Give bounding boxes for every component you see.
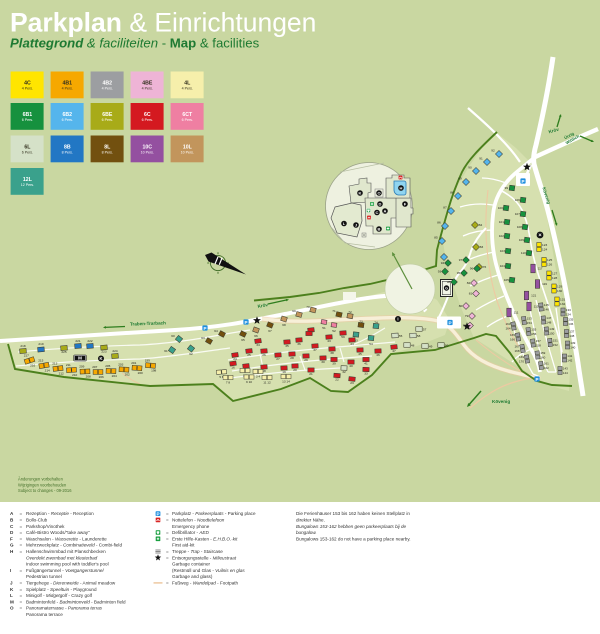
svg-text:Mehrzweckplatz - Combinatievel: Mehrzweckplatz - Combinatieveld - Combi-… — [26, 543, 122, 548]
svg-text:69: 69 — [292, 309, 296, 313]
svg-text:Waschsalon - Wasserette - Laun: Waschsalon - Wasserette - Launderette — [26, 536, 107, 541]
svg-text:P: P — [448, 320, 451, 325]
svg-text:213: 213 — [52, 362, 57, 366]
svg-text:100: 100 — [498, 206, 503, 210]
svg-text:119: 119 — [542, 282, 547, 286]
svg-text:13 14: 13 14 — [282, 379, 290, 383]
svg-text:4 Pers.: 4 Pers. — [142, 86, 153, 90]
svg-text:=: = — [20, 587, 23, 592]
svg-text:84: 84 — [479, 223, 483, 227]
svg-text:M: M — [10, 599, 14, 604]
svg-text:146: 146 — [544, 307, 549, 311]
svg-text:49: 49 — [429, 344, 433, 348]
svg-text:81: 81 — [469, 292, 473, 296]
svg-text:166: 166 — [510, 337, 515, 341]
svg-text:=: = — [20, 568, 23, 573]
svg-text:35: 35 — [285, 344, 289, 348]
svg-text:=: = — [166, 530, 169, 535]
svg-text:=: = — [20, 593, 23, 598]
svg-text:216: 216 — [30, 364, 35, 368]
svg-text:Emergency phone: Emergency phone — [172, 524, 210, 529]
svg-text:164: 164 — [506, 326, 511, 330]
svg-text:7 8: 7 8 — [226, 380, 231, 384]
svg-text:=: = — [20, 518, 23, 523]
svg-text:3 4: 3 4 — [256, 374, 261, 378]
svg-text:96: 96 — [470, 267, 474, 271]
svg-text:J: J — [355, 222, 357, 227]
svg-text:F: F — [10, 536, 13, 541]
svg-text:=: = — [20, 543, 23, 548]
svg-text:79: 79 — [465, 314, 469, 318]
svg-text:Bungalows 153-162 do not have: Bungalows 153-162 do not have a parking … — [296, 536, 411, 541]
svg-text:92: 92 — [491, 149, 495, 153]
svg-text:67: 67 — [268, 329, 272, 333]
svg-text:152: 152 — [553, 343, 558, 347]
svg-text:Rezeption - Receptie - Recepti: Rezeption - Receptie - Reception — [26, 511, 94, 516]
svg-text:I: I — [397, 317, 398, 322]
svg-text:217: 217 — [24, 354, 29, 358]
svg-text:154: 154 — [527, 321, 532, 325]
svg-text:=: = — [20, 606, 23, 611]
svg-text:106: 106 — [515, 198, 520, 202]
svg-text:25: 25 — [247, 353, 251, 357]
svg-text:6 Pers.: 6 Pers. — [22, 118, 33, 122]
svg-text:95: 95 — [457, 271, 461, 275]
svg-text:103: 103 — [500, 249, 505, 253]
svg-text:128: 128 — [552, 276, 557, 280]
svg-text:200: 200 — [138, 371, 143, 375]
svg-text:86: 86 — [437, 221, 441, 225]
svg-text:P: P — [156, 511, 159, 516]
svg-text:Subject to changes - 09-2016: Subject to changes - 09-2016 — [18, 488, 72, 493]
svg-text:65: 65 — [241, 338, 245, 342]
svg-text:4 Pers.: 4 Pers. — [62, 86, 73, 90]
svg-text:=: = — [20, 524, 23, 529]
svg-text:10 Pers.: 10 Pers. — [181, 150, 194, 154]
svg-text:134: 134 — [566, 312, 571, 316]
svg-text:123: 123 — [542, 243, 547, 247]
svg-text:105: 105 — [504, 278, 509, 282]
svg-text:71: 71 — [332, 309, 336, 313]
svg-text:4 Pers.: 4 Pers. — [182, 86, 193, 90]
svg-text:Badmintonfeld - Badmintonveld: Badmintonfeld - Badmintonveld - Badminto… — [26, 599, 126, 604]
svg-text:Garbage container: Garbage container — [172, 562, 211, 567]
svg-text:44: 44 — [350, 342, 354, 346]
svg-text:48: 48 — [411, 343, 415, 347]
svg-text:82: 82 — [467, 281, 471, 285]
svg-text:127: 127 — [552, 271, 557, 275]
svg-text:60: 60 — [171, 334, 175, 338]
svg-text:16: 16 — [231, 365, 235, 369]
svg-text:Tiergehege - Dierenweide - Ani: Tiergehege - Dierenweide - Animal meadow — [26, 581, 116, 586]
svg-text:Minigolf - Midgetgolf - Crazy: Minigolf - Midgetgolf - Crazy golf — [26, 593, 93, 598]
svg-text:57: 57 — [423, 327, 427, 331]
svg-text:Kövenig: Kövenig — [492, 399, 510, 404]
svg-text:205: 205 — [105, 364, 110, 368]
svg-text:109: 109 — [519, 238, 524, 242]
svg-text:6 Pers.: 6 Pers. — [102, 118, 113, 122]
svg-text:222: 222 — [87, 339, 92, 343]
svg-text:22: 22 — [335, 377, 339, 381]
svg-text:111: 111 — [514, 311, 519, 315]
svg-text:P: P — [203, 326, 206, 331]
svg-text:117: 117 — [538, 267, 543, 271]
svg-text:First aid-kit: First aid-kit — [172, 543, 195, 548]
svg-text:68: 68 — [282, 323, 286, 327]
svg-text:102: 102 — [499, 234, 504, 238]
svg-text:115: 115 — [534, 305, 539, 309]
svg-text:Garbage and glass): Garbage and glass) — [172, 574, 213, 579]
svg-text:✕: ✕ — [538, 233, 542, 238]
svg-text:Pedestrian tunnel: Pedestrian tunnel — [26, 574, 62, 579]
svg-text:27: 27 — [276, 357, 280, 361]
svg-text:23: 23 — [350, 381, 354, 385]
svg-text:142: 142 — [567, 358, 572, 362]
svg-text:150: 150 — [549, 331, 554, 335]
svg-text:87: 87 — [443, 206, 447, 210]
svg-text:98: 98 — [447, 280, 451, 284]
svg-text:130: 130 — [557, 289, 562, 293]
svg-text:54: 54 — [369, 342, 373, 346]
svg-text:H: H — [400, 185, 403, 190]
svg-text:51: 51 — [322, 326, 326, 330]
svg-text:45: 45 — [358, 352, 362, 356]
svg-text:=: = — [166, 555, 169, 560]
svg-text:Parkshop/Vinothek: Parkshop/Vinothek — [26, 524, 65, 529]
svg-text:47: 47 — [392, 349, 396, 353]
svg-text:58: 58 — [417, 334, 421, 338]
svg-text:4 Pers.: 4 Pers. — [22, 86, 33, 90]
svg-text:59: 59 — [341, 335, 345, 339]
svg-text:214: 214 — [45, 369, 50, 373]
svg-text:=: = — [166, 518, 169, 523]
svg-text:215: 215 — [38, 359, 43, 363]
svg-text:6 Pers.: 6 Pers. — [142, 118, 153, 122]
svg-text:Treppe - Trap - Staircase: Treppe - Trap - Staircase — [172, 549, 223, 554]
svg-text:P: P — [535, 377, 538, 382]
svg-text:211: 211 — [66, 363, 71, 367]
svg-text:204: 204 — [112, 374, 117, 378]
svg-text:C: C — [376, 210, 379, 215]
svg-text:218: 218 — [20, 344, 25, 348]
svg-text:Parkplatz - Parkeerplaats - Pa: Parkplatz - Parkeerplaats - Parking plac… — [172, 511, 256, 516]
svg-text:6 Pers.: 6 Pers. — [22, 150, 33, 154]
svg-text:198: 198 — [151, 369, 156, 373]
svg-text:19: 19 — [282, 370, 286, 374]
svg-text:121: 121 — [531, 294, 536, 298]
svg-text:223: 223 — [101, 350, 106, 354]
svg-text:36: 36 — [297, 342, 301, 346]
svg-text:Plattegrond & faciliteiten - M: Plattegrond & faciliteiten - Map & facil… — [10, 36, 260, 51]
svg-text:Panorama terrace: Panorama terrace — [26, 612, 63, 617]
svg-text:28: 28 — [290, 356, 294, 360]
svg-text:136: 136 — [568, 322, 573, 326]
svg-text:85: 85 — [434, 236, 438, 240]
svg-text:89: 89 — [458, 177, 462, 181]
svg-text:G: G — [10, 543, 14, 548]
svg-text:Defibrillator - AED: Defibrillator - AED — [172, 530, 209, 535]
svg-text:24: 24 — [233, 357, 237, 361]
svg-text:101: 101 — [499, 220, 504, 224]
svg-text:26: 26 — [262, 353, 266, 357]
svg-text:66: 66 — [254, 334, 258, 338]
svg-text:64: 64 — [214, 329, 218, 333]
svg-text:12 Pers.: 12 Pers. — [21, 183, 34, 187]
svg-text:Hallenschwimmbad mit Planschbe: Hallenschwimmbad mit Planschbecken — [26, 549, 106, 554]
svg-text:=: = — [20, 581, 23, 586]
svg-text:Spielplatz - Speeltuin - Playg: Spielplatz - Speeltuin - Playground — [26, 587, 97, 592]
svg-text:8 Pers.: 8 Pers. — [102, 150, 113, 154]
svg-text:J: J — [10, 581, 13, 586]
svg-text:Bungalows 153-162 hebben geen: Bungalows 153-162 hebben geen parkeerpla… — [296, 524, 407, 529]
svg-text:80: 80 — [459, 304, 463, 308]
svg-text:Panoramaterrasse - Panorama te: Panoramaterrasse - Panorama terras — [26, 606, 103, 611]
svg-text:160: 160 — [540, 355, 545, 359]
svg-text:M: M — [78, 356, 82, 361]
svg-text:208: 208 — [86, 375, 91, 379]
svg-text:=: = — [20, 530, 23, 535]
svg-text:55: 55 — [399, 334, 403, 338]
svg-text:94: 94 — [441, 261, 445, 265]
svg-text:Bollo-Club: Bollo-Club — [26, 518, 48, 523]
svg-text:O: O — [10, 606, 14, 611]
svg-text:70: 70 — [306, 305, 310, 309]
svg-text:104: 104 — [500, 264, 505, 268]
svg-text:201: 201 — [131, 361, 136, 365]
svg-text:52: 52 — [332, 329, 336, 333]
svg-text:Indoor swimming pool with todd: Indoor swimming pool with toddler's pool — [26, 562, 109, 567]
svg-text:20: 20 — [293, 368, 297, 372]
svg-text:43: 43 — [327, 339, 331, 343]
svg-text:38: 38 — [330, 351, 334, 355]
svg-text:32: 32 — [342, 370, 346, 374]
svg-text:97: 97 — [459, 258, 463, 262]
svg-text:91: 91 — [479, 157, 483, 161]
svg-text:6 Pers.: 6 Pers. — [62, 118, 73, 122]
svg-text:99: 99 — [505, 186, 509, 190]
svg-text:K: K — [99, 356, 102, 361]
svg-text:148: 148 — [546, 320, 551, 324]
svg-text:Nottelefon - Noodtelefoon: Nottelefon - Noodtelefoon — [172, 518, 225, 523]
svg-text:K: K — [359, 190, 362, 195]
svg-text:=: = — [20, 549, 23, 554]
svg-text:62: 62 — [189, 352, 193, 356]
svg-text:9 10: 9 10 — [246, 380, 252, 384]
svg-text:168: 168 — [515, 349, 520, 353]
svg-text:206: 206 — [99, 375, 104, 379]
svg-text:O: O — [377, 190, 380, 195]
svg-text:Änderungen vorbehalten: Änderungen vorbehalten — [18, 477, 64, 482]
svg-text:225: 225 — [61, 350, 66, 354]
svg-text:(Restmüll und Glas - Vuilnis e: (Restmüll und Glas - Vuilnis en glas — [172, 568, 245, 573]
svg-text:P: P — [244, 320, 247, 325]
svg-text:A: A — [384, 208, 387, 213]
svg-text:156: 156 — [531, 332, 536, 336]
svg-text:=: = — [20, 599, 23, 604]
svg-text:108: 108 — [517, 225, 522, 229]
svg-text:202: 202 — [125, 373, 130, 377]
svg-text:224: 224 — [112, 349, 117, 353]
svg-text:170: 170 — [519, 359, 524, 363]
svg-text:90: 90 — [468, 166, 472, 170]
svg-text:203: 203 — [118, 363, 123, 367]
svg-text:162: 162 — [544, 366, 549, 370]
svg-text:34: 34 — [256, 343, 260, 347]
svg-text:88: 88 — [450, 191, 454, 195]
svg-text:10 Pers.: 10 Pers. — [141, 150, 154, 154]
svg-text:76: 76 — [483, 265, 487, 269]
svg-text:61: 61 — [164, 349, 168, 353]
svg-text:B: B — [378, 226, 381, 231]
svg-text:8 Pers.: 8 Pers. — [62, 150, 73, 154]
svg-text:=: = — [166, 581, 169, 586]
svg-text:direkter Nähe.: direkter Nähe. — [296, 518, 325, 523]
svg-text:D: D — [379, 201, 382, 206]
svg-text:124: 124 — [542, 248, 547, 252]
svg-text:207: 207 — [92, 365, 97, 369]
svg-text:212: 212 — [59, 372, 64, 376]
svg-text:11 12: 11 12 — [263, 380, 271, 384]
svg-text:=: = — [20, 536, 23, 541]
svg-text:107: 107 — [515, 212, 520, 216]
svg-text:Die Ferienhäuser 153 bis 162 h: Die Ferienhäuser 153 bis 162 haben keine… — [296, 511, 410, 516]
svg-text:4 Pers.: 4 Pers. — [102, 86, 113, 90]
svg-text:=: = — [166, 549, 169, 554]
svg-text:L: L — [10, 593, 13, 598]
svg-text:199: 199 — [145, 359, 150, 363]
svg-text:P: P — [521, 179, 524, 184]
svg-text:132: 132 — [560, 302, 565, 306]
svg-text:41: 41 — [364, 361, 368, 365]
svg-text:30: 30 — [321, 360, 325, 364]
svg-text:144: 144 — [563, 371, 568, 375]
svg-text:83: 83 — [480, 245, 484, 249]
svg-text:=: = — [166, 511, 169, 516]
svg-text:I: I — [10, 568, 11, 573]
svg-text:63: 63 — [201, 336, 205, 340]
svg-text:129: 129 — [557, 284, 562, 288]
svg-text:21: 21 — [309, 372, 313, 376]
svg-text:209: 209 — [79, 365, 84, 369]
svg-text:Fußgängertunnel - Voetgangerst: Fußgängertunnel - Voetgangerstunnel — [26, 568, 104, 573]
svg-text:125: 125 — [547, 258, 552, 262]
svg-text:221: 221 — [75, 339, 80, 343]
svg-text:Parkplan & Einrichtungen: Parkplan & Einrichtungen — [10, 8, 316, 38]
svg-text:74: 74 — [374, 321, 378, 325]
svg-text:138: 138 — [569, 334, 574, 338]
svg-text:72: 72 — [348, 310, 352, 314]
svg-text:=: = — [20, 511, 23, 516]
svg-text:G: G — [445, 286, 448, 290]
svg-text:50: 50 — [445, 343, 449, 347]
svg-text:29: 29 — [304, 358, 308, 362]
svg-text:140: 140 — [570, 345, 575, 349]
svg-text:110: 110 — [521, 251, 526, 255]
svg-text:131: 131 — [560, 297, 565, 301]
svg-text:Entsorgungsstelle - Milieustra: Entsorgungsstelle - Milieustraat — [172, 555, 237, 560]
svg-text:6 Pers.: 6 Pers. — [182, 118, 193, 122]
svg-text:40: 40 — [349, 364, 353, 368]
svg-text:46: 46 — [376, 353, 380, 357]
svg-text:Wijzigingen voorbehouden: Wijzigingen voorbehouden — [18, 482, 67, 487]
svg-text:39: 39 — [332, 361, 336, 365]
svg-text:210: 210 — [72, 373, 77, 377]
svg-text:37: 37 — [313, 348, 317, 352]
svg-text:73: 73 — [359, 320, 363, 324]
svg-text:=: = — [166, 536, 169, 541]
svg-text:33: 33 — [364, 371, 368, 375]
svg-text:93: 93 — [438, 270, 442, 274]
svg-text:Café-Bistro Woods/"take away": Café-Bistro Woods/"take away" — [26, 530, 90, 535]
svg-text:Erste Hilfe-Kasten - E.H.B.O.-: Erste Hilfe-Kasten - E.H.B.O.-kit — [172, 536, 238, 541]
svg-text:126: 126 — [547, 263, 552, 267]
svg-text:219: 219 — [38, 342, 43, 346]
svg-text:Overdekt zwembad met kleuterba: Overdekt zwembad met kleuterbad — [26, 555, 98, 560]
svg-text:158: 158 — [536, 343, 541, 347]
svg-text:bungalow.: bungalow. — [296, 530, 317, 535]
svg-text:Fußweg - Wandelpad - Footpath: Fußweg - Wandelpad - Footpath — [172, 581, 239, 586]
